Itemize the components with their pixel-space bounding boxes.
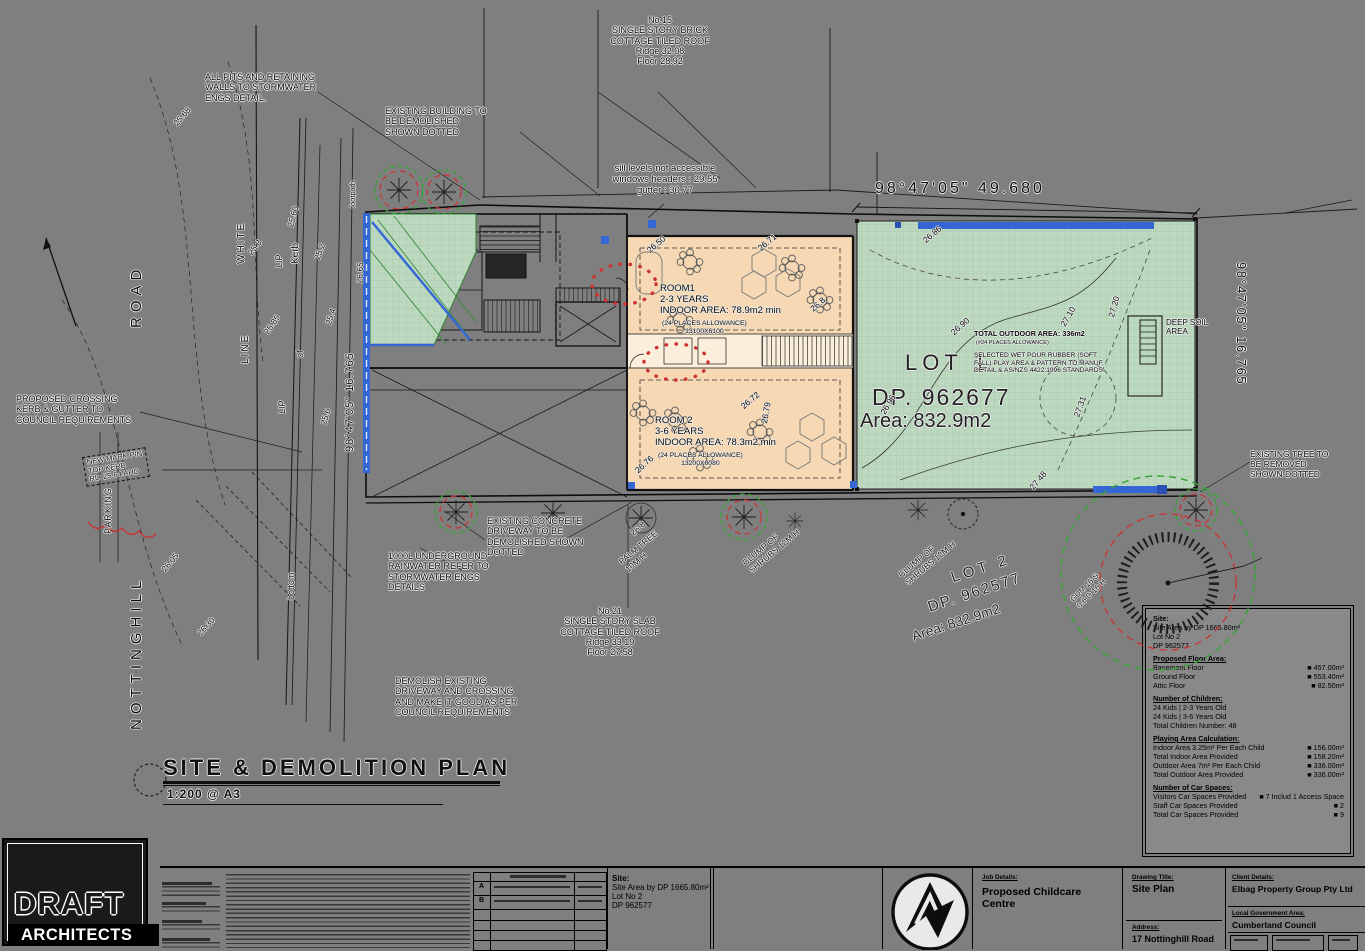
note-crossing: PROPOSED CROSSING KERB & GUTTER TO COUNC… [16,394,131,425]
title-underline-thin [163,785,500,786]
sheet-scale: 1:200 @ A3 [167,788,241,802]
spot-level: 26.8 [809,296,828,314]
tb-mini-box [1230,935,1268,951]
tb-address-value: 17 Nottinghill Road [1132,934,1214,944]
illegible-text-line [162,882,212,885]
note-sill-levels: sill levels not accessible windows heade… [580,164,750,197]
road-lip-2: LIP [277,400,287,414]
tb-lga-value: Cumberland Council [1232,920,1316,930]
spot-level: 26.30 [196,616,217,638]
note-driveway: EXISTING CONCRETE DRIVEWAY TO BE DEMOLIS… [487,516,584,557]
note-demolish-driveway: DEMOLISH EXISTING DRIVEWAY AND CROSSING … [395,676,517,717]
palm-label: PALM TREE 10M H [617,529,666,574]
road-name-road: ROAD [128,265,145,328]
tb-project-label: Job Details: [982,874,1018,881]
spot-level: 26.72 [739,390,762,411]
note-demolished-building: EXISTING BUILDING TO BE DEMOLISHED SHOWN… [385,106,487,137]
room2-sub: (24 PLACES ALLOWANCE) 13200X6080 [658,452,743,468]
lot1-area: Area: 832.9m2 [860,410,991,433]
note-mark-pin: NEW MARK PIN TOP KERB RL: 25.64 AHD [82,447,150,486]
amendments-header [510,875,566,878]
neighbour-no15: No.15 SINGLE STORY BRICK COTTAGE TILED R… [585,15,735,67]
note-pits: ALL PITS AND RETAINING WALLS TO STORMWAT… [205,72,316,103]
spot-level: 26.65 [355,262,366,284]
road-white: WHITE [236,222,248,264]
neighbour-no21: No.21 SINGLE STORY SLAB COTTAGE TILED RO… [545,606,675,658]
illegible-text-line [494,886,570,888]
illegible-text-line [578,900,602,902]
amendment-issue: A [479,883,484,890]
room1-sub: (24 PLACES ALLOWANCE) 13100X6100 [662,320,747,336]
tb-mini-box [1272,935,1324,951]
tb-address-label: Address: [1132,924,1159,931]
site-plan-screenshot: { "colors":{"paper_gray":"#7f7f7f","outd… [0,0,1365,947]
logo-name-top: DRAFT [14,886,124,922]
road-name-nottinghill: NOTTINGHILL [128,576,145,730]
spot-level: 25.60 [286,205,301,228]
spot-level: 26.86 [921,224,944,245]
title-underline [163,781,500,784]
site-plan-canvas: Site: Site Area by DP 1665.80m² Lot No 2… [0,0,1365,947]
illegible-text-line [494,900,570,902]
illegible-text-line [162,938,210,941]
spot-level: 26.05 [160,552,181,575]
road-lip-1: LIP [274,254,284,268]
spot-level: 26.76 [633,454,655,475]
spot-level: 25.2 [313,242,328,261]
tb-project-value: Proposed Childcare Centre [982,886,1081,910]
outdoor-area-spec: SELECTED WET POUR RUBBER (SOFT FALL) PLA… [974,352,1104,375]
tb-site-line: Site Area by DP 1665.80m² [612,883,709,892]
amendment-issue: B [479,897,484,904]
shrubs1-label: CLUMP OF SHRUBS 12M H [741,520,802,575]
spot-level: 25.8 [246,238,264,257]
note-tank: 1000L UNDERGROUND RAINWATER REFER TO STO… [388,551,489,592]
spot-level: 27.48 [1028,470,1049,493]
amendments-table: A B [473,872,607,951]
architect-logo: DRAFT ARCHITECTS [2,838,148,946]
spot-level: 27.31 [1072,395,1088,418]
road-bottom: bottom [286,572,296,600]
spot-level: 26.50 [645,234,668,255]
scale-underline [163,804,443,805]
illegible-text-line [162,902,206,905]
tb-site-line: DP 962577 [612,901,709,910]
spot-level: 27.20 [1107,295,1122,318]
sheet-title: SITE & DEMOLITION PLAN [163,755,510,780]
spot-level: 27.10 [1059,305,1078,328]
shrubs2-label: CLUMP OF SHRUBS 12M H [897,532,958,587]
tb-site-panel: Site: Site Area by DP 1665.80m² Lot No 2… [612,874,709,910]
room1-label: ROOM1 2-3 YEARS INDOOR AREA: 78.9m2 min [660,284,781,317]
road-of: of [295,350,305,358]
road-kerb: Kerb [290,243,302,264]
gum-label: GUM 16 S 0.6 D 16 H [1069,571,1108,610]
logo-name-bottom: ARCHITECTS [8,924,159,946]
general-notes-block [226,874,470,948]
spot-level: 26.71 [756,232,779,253]
tb-lga-label: Local Government Area: [1232,910,1305,917]
spot-level: 26.90 [949,316,971,337]
tb-drawing-value: Site Plan [1132,884,1174,895]
title-block: A B Site: Site Area by DP 1665.80m² Lot … [160,866,1365,949]
dim-top-boundary: 98°47'05" 49.680 [875,180,1045,198]
spot-level: 25.4 [324,308,338,327]
illegible-text-line [578,886,602,888]
outdoor-area-title: TOTAL OUTDOOR AREA: 336m2 [974,330,1085,338]
illegible-text-line [162,920,202,923]
outdoor-area-sub: (#24 PLACES ALLOWANCE) [976,340,1049,346]
tb-client-value: Elbag Property Group Pty Ltd [1232,884,1353,894]
deep-soil-label: DEEP SOIL AREA [1166,318,1208,336]
illegible-text-block [162,886,220,896]
road-footpath: footpath [349,181,358,208]
tb-client-label: Client Details: [1232,874,1274,881]
tb-site-heading: Site: [612,874,709,883]
tb-drawing-label: Drawing Title: [1132,874,1174,881]
tb-mini-box [1328,935,1358,951]
firm-arrow-logo-icon [886,870,974,950]
spot-level: 25.6 [319,408,333,427]
illegible-text-block [162,942,220,949]
tb-site-line: Lot No 2 [612,892,709,901]
dim-left-boundary: 98°47'05" 16.765 [344,352,357,452]
room2-label: ROOM 2 3-6 YEARS INDOOR AREA: 78.3m2 min [655,416,776,449]
spot-level: 25.85 [263,313,283,336]
road-parking: PARKING [103,487,113,534]
illegible-text-block [162,924,220,932]
illegible-text-block [162,906,220,914]
road-line: LINE [240,334,252,364]
dim-right-boundary: 98°47'05" 16.765 [1233,262,1248,385]
spot-level: 25.68 [172,106,193,129]
note-tree-removed: EXISTING TREE TO BE REMOVED SHOWN DOTTED [1250,450,1328,479]
